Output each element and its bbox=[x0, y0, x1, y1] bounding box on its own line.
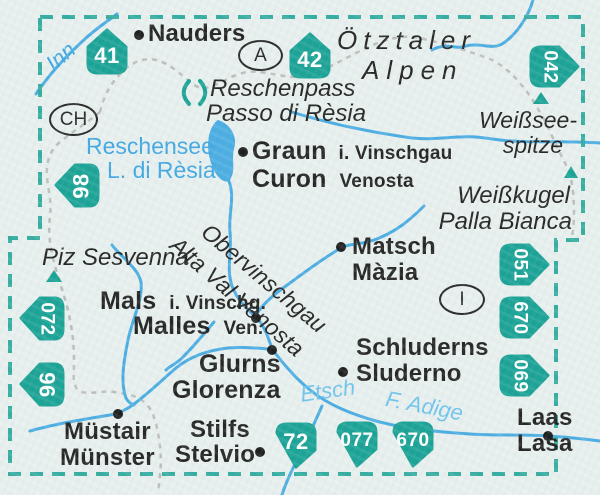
town-label-graun-de: Graun i. Vinschgau bbox=[252, 139, 452, 164]
town-label-laas: Laas bbox=[517, 406, 573, 430]
range-label-oetztaler: Ötztaler bbox=[337, 27, 476, 53]
town-dot-matsch bbox=[336, 242, 346, 252]
town-label-mazia: Màzia bbox=[352, 261, 418, 285]
lake-label-reschensee-de: Reschensee bbox=[86, 135, 214, 158]
town-label-muenster: Münster bbox=[60, 446, 155, 470]
town-label-sluderno: Sluderno bbox=[356, 362, 462, 386]
town-label-glorenza: Glorenza bbox=[172, 378, 281, 403]
pass-icon bbox=[184, 81, 206, 104]
peak-label-weissseespitze-1: Weißsee- bbox=[479, 109, 577, 132]
town-label-muestair: Müstair bbox=[64, 420, 151, 444]
town-name-primary: Malles bbox=[133, 312, 211, 340]
map-sheet-badge-072: 072 bbox=[18, 292, 66, 345]
town-label-lasa: Lasa bbox=[517, 432, 573, 456]
lake-label-reschensee-it: L. di Rèsia bbox=[107, 159, 216, 182]
town-label-schluderns: Schluderns bbox=[356, 336, 489, 360]
map-sheet-badge-42: 42 bbox=[287, 31, 333, 80]
map-sheet-badge-042: 042 bbox=[528, 43, 581, 90]
map-sheet-badge-72: 72 bbox=[273, 421, 319, 470]
map-sheet-badge-069: 069 bbox=[498, 352, 551, 399]
peak-icon-piz-sesvenna bbox=[46, 270, 62, 282]
town-name-primary: Curon bbox=[252, 165, 327, 193]
sheet-number: 077 bbox=[340, 430, 373, 452]
sheet-number: 051 bbox=[508, 248, 530, 281]
town-label-matsch: Matsch bbox=[352, 235, 436, 259]
town-label-stilfs: Stilfs bbox=[190, 418, 250, 442]
map-sheet-badge-051: 051 bbox=[498, 241, 551, 288]
sheet-number: 670 bbox=[508, 301, 530, 334]
town-label-glurns: Glurns bbox=[199, 352, 281, 377]
country-code-switzerland: CH bbox=[60, 109, 87, 131]
town-name-primary: Graun bbox=[252, 137, 327, 165]
country-code-austria: A bbox=[254, 45, 267, 67]
range-label-alpen: Alpen bbox=[362, 57, 464, 83]
country-code-italy: I bbox=[459, 289, 464, 311]
town-name-suffix: Ven. bbox=[224, 318, 264, 339]
town-name-suffix: Venosta bbox=[339, 171, 413, 192]
peak-icon-weissseespitze bbox=[533, 92, 549, 104]
map-sheet-badge-98: 98 bbox=[53, 159, 101, 212]
map-sheet-badge-96: 96 bbox=[18, 358, 66, 411]
map-canvas: A CH I 41 42 042 051 670 069 98 072 bbox=[0, 0, 600, 495]
peak-label-weisskugel: Weißkugel bbox=[457, 184, 570, 208]
country-oval-switzerland: CH bbox=[49, 103, 98, 136]
town-dot-stilfs bbox=[255, 447, 265, 457]
peak-label-weissseespitze-2: spitze bbox=[503, 134, 563, 157]
town-dot-nauders bbox=[134, 30, 144, 40]
peak-label-palla-bianca: Palla Bianca bbox=[439, 210, 572, 234]
pass-label-reschenpass: Reschenpass bbox=[210, 77, 355, 101]
town-label-malles: Malles Ven. bbox=[133, 314, 263, 339]
sheet-number: 42 bbox=[297, 47, 322, 73]
sheet-number: 41 bbox=[94, 43, 119, 69]
town-label-graun-it: Curon Venosta bbox=[252, 167, 414, 192]
town-label-stelvio: Stelvio bbox=[175, 443, 255, 467]
town-label-nauders: Nauders bbox=[148, 22, 245, 46]
map-sheet-badge-670-right: 670 bbox=[498, 294, 551, 341]
pass-label-passo-di-resia: Passo di Rèsia bbox=[206, 102, 366, 126]
town-name-suffix: i. Vinschg. bbox=[169, 293, 266, 314]
sheet-number: 96 bbox=[34, 372, 60, 397]
sheet-number: 670 bbox=[396, 430, 429, 452]
peak-icon-weisskugel bbox=[564, 166, 578, 178]
sheet-number: 042 bbox=[538, 50, 560, 83]
town-dot-graun bbox=[238, 147, 248, 157]
sheet-number: 069 bbox=[508, 359, 530, 392]
sheet-number: 072 bbox=[36, 302, 58, 335]
sheet-number: 98 bbox=[69, 173, 95, 198]
sheet-number: 72 bbox=[283, 429, 308, 455]
town-name-suffix: i. Vinschgau bbox=[339, 143, 453, 164]
map-sheet-badge-41: 41 bbox=[84, 27, 130, 76]
map-sheet-badge-077: 077 bbox=[334, 420, 380, 469]
country-oval-italy: I bbox=[439, 284, 485, 315]
town-name-primary: Mals bbox=[100, 287, 156, 315]
town-label-mals: Mals i. Vinschg. bbox=[100, 289, 266, 314]
map-sheet-badge-670-bottom: 670 bbox=[390, 420, 436, 469]
